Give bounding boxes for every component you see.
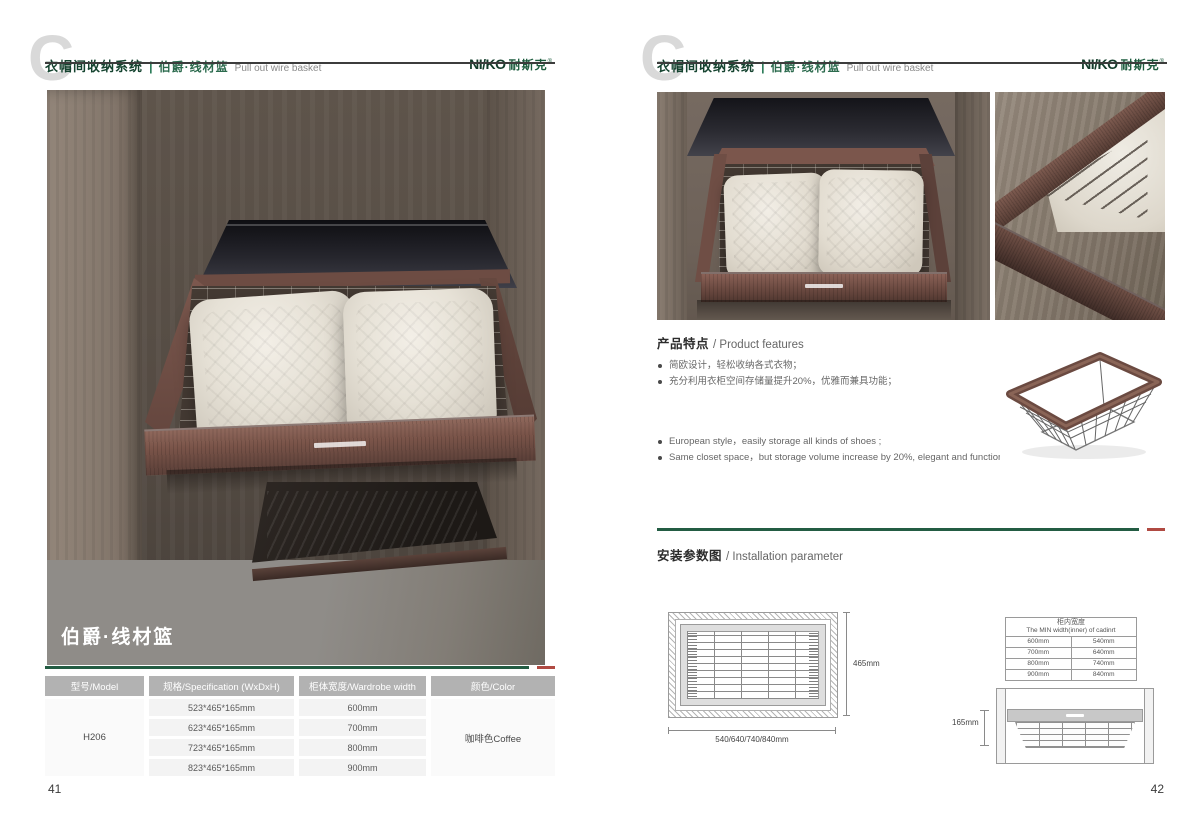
feature-bullet: 简欧设计，轻松收纳各式衣物；	[658, 360, 802, 372]
wardrobe-left-wall	[657, 92, 687, 320]
installation-section-title: 安装参数图/ Installation parameter	[657, 545, 843, 565]
cabinet-width: 900mm	[1006, 670, 1072, 680]
catalog-page-left: C 衣帽间收纳系统 | 伯爵·线材篮 Pull out wire basket …	[0, 0, 600, 820]
feature-text: 充分利用衣柜空间存储量提升20%，优雅而兼具功能；	[669, 376, 897, 388]
brand-logo-cn: 耐斯克	[509, 56, 548, 73]
min-width-row: 800mm 740mm	[1006, 659, 1136, 670]
feature-text: Same closet space，but storage volume inc…	[669, 452, 1013, 464]
page-header: C 衣帽间收纳系统 | 伯爵·线材篮 Pull out wire basket …	[600, 22, 1200, 66]
wire-grid	[687, 631, 819, 699]
section-separator	[657, 528, 1165, 531]
header-rule	[657, 62, 1167, 64]
separator-gap	[1139, 528, 1147, 531]
product-render-image	[1000, 332, 1168, 464]
wardrobe-right-wall	[955, 92, 990, 320]
photo-caption: 伯爵·线材篮	[61, 622, 174, 649]
dimension-line-vertical	[846, 612, 847, 716]
wire-basket-front	[1015, 722, 1135, 748]
table-header-color: 颜色/Color	[431, 676, 555, 696]
main-product-photo: 伯爵·线材篮	[47, 90, 545, 665]
brand-logo: NI/KO 耐斯克 ®	[469, 56, 552, 73]
glass-shelf	[687, 98, 955, 156]
dimension-label-height: 165mm	[952, 718, 979, 727]
table-cell-color: 咖啡色Coffee	[431, 699, 555, 776]
table-cell-width: 800mm	[299, 739, 426, 756]
feature-bullet: Same closet space，but storage volume inc…	[658, 452, 1013, 464]
detail-photo-corner	[995, 92, 1165, 320]
min-width-table-header: 柜内宽度 The MIN width(inner) of cadinrt	[1006, 618, 1136, 637]
cabinet-right-side	[1144, 689, 1153, 763]
spec-table: 型号/Model 规格/Specification (WxDxH) 柜体宽度/W…	[45, 676, 555, 776]
table-cell-model: H206	[45, 699, 144, 776]
header-product-title-cn: 伯爵·线材篮	[159, 58, 229, 75]
section-separator	[45, 666, 555, 669]
dimension-line-horizontal	[668, 730, 836, 731]
min-width-row: 600mm 540mm	[1006, 637, 1136, 648]
feature-text: European style，easily storage all kinds …	[669, 436, 881, 448]
catalog-page-right: C 衣帽间收纳系统 | 伯爵·线材篮 Pull out wire basket …	[600, 0, 1200, 820]
basket-front-rail	[701, 272, 947, 302]
feature-bullet: European style，easily storage all kinds …	[658, 436, 881, 448]
cabinet-width: 700mm	[1006, 648, 1072, 658]
min-width-row: 900mm 840mm	[1006, 670, 1136, 680]
header-product-title-cn: 伯爵·线材篮	[771, 58, 841, 75]
page-header: C 衣帽间收纳系统 | 伯爵·线材篮 Pull out wire basket …	[0, 22, 600, 66]
table-cell-width: 700mm	[299, 719, 426, 736]
top-view-diagram: 465mm 540/640/740/840mm	[668, 612, 908, 757]
min-width-title-cn: 柜内宽度	[1006, 619, 1136, 627]
basket-rail-bar	[1007, 709, 1143, 722]
installation-title-en: / Installation parameter	[726, 551, 843, 563]
dimension-label-width: 540/640/740/840mm	[668, 735, 836, 744]
separator-red-bar	[537, 666, 555, 669]
table-cell-width: 900mm	[299, 759, 426, 776]
separator-red-bar	[1147, 528, 1165, 531]
wire-ends-right	[809, 633, 818, 697]
dimension-line-height	[984, 710, 985, 746]
table-header-model: 型号/Model	[45, 676, 144, 696]
header-system-title: 衣帽间收纳系统	[657, 56, 755, 75]
separator-gap	[529, 666, 537, 669]
detail-photo-top-view	[657, 92, 990, 320]
min-inner-width: 840mm	[1072, 670, 1137, 680]
table-header-spec: 规格/Specification (WxDxH)	[149, 676, 294, 696]
features-title-cn: 产品特点	[657, 337, 709, 351]
cabinet-width: 800mm	[1006, 659, 1072, 669]
min-inner-width: 540mm	[1072, 637, 1137, 647]
features-section-title: 产品特点/ Product features	[657, 333, 804, 353]
shadow-under-basket	[697, 300, 951, 320]
cabinet-width: 600mm	[1006, 637, 1072, 647]
table-header-width: 柜体宽度/Wardrobe width	[299, 676, 426, 696]
front-view-diagram: 165mm	[952, 688, 1157, 768]
table-cell-width: 600mm	[299, 699, 426, 716]
bullet-icon	[658, 440, 662, 444]
page-number: 41	[48, 782, 61, 796]
rail-logo-chip	[314, 441, 366, 448]
brand-logo-en: NI/KO	[469, 56, 505, 72]
dimension-label-depth: 465mm	[853, 659, 880, 668]
min-inner-width: 740mm	[1072, 659, 1137, 669]
feature-bullet: 充分利用衣柜空间存储量提升20%，优雅而兼具功能；	[658, 376, 897, 388]
feature-text: 简欧设计，轻松收纳各式衣物；	[669, 360, 802, 372]
installation-title-cn: 安装参数图	[657, 549, 722, 563]
header-system-title: 衣帽间收纳系统	[45, 56, 143, 75]
separator-green-bar	[45, 666, 529, 669]
folded-sweater	[723, 172, 829, 279]
min-width-table: 柜内宽度 The MIN width(inner) of cadinrt 600…	[1005, 617, 1137, 681]
basket-frame	[681, 625, 825, 705]
table-cell-spec: 623*465*165mm	[149, 719, 294, 736]
min-width-title-en: The MIN width(inner) of cadinrt	[1006, 627, 1136, 635]
bullet-icon	[658, 380, 662, 384]
wire-ends-left	[688, 633, 697, 697]
brand-logo-cn: 耐斯克	[1121, 56, 1160, 73]
min-width-row: 700mm 640mm	[1006, 648, 1136, 659]
min-inner-width: 640mm	[1072, 648, 1137, 658]
cabinet-front-outline	[996, 688, 1154, 764]
folded-sweater	[818, 169, 924, 277]
features-title-en: / Product features	[713, 339, 804, 351]
bullet-icon	[658, 364, 662, 368]
brand-logo-en: NI/KO	[1081, 56, 1117, 72]
rail-logo-chip	[1066, 714, 1084, 717]
cabinet-outline-hatched	[668, 612, 838, 718]
header-product-title-en: Pull out wire basket	[235, 63, 322, 74]
header-rule	[45, 62, 555, 64]
bullet-icon	[658, 456, 662, 460]
table-cell-spec: 823*465*165mm	[149, 759, 294, 776]
header-product-title-en: Pull out wire basket	[847, 63, 934, 74]
table-cell-spec: 723*465*165mm	[149, 739, 294, 756]
brand-logo: NI/KO 耐斯克 ®	[1081, 56, 1164, 73]
page-number: 42	[1151, 782, 1164, 796]
rail-logo-chip	[805, 284, 843, 288]
separator-green-bar	[657, 528, 1139, 531]
cabinet-left-side	[997, 689, 1006, 763]
table-cell-spec: 523*465*165mm	[149, 699, 294, 716]
basket-clearance	[675, 619, 831, 711]
